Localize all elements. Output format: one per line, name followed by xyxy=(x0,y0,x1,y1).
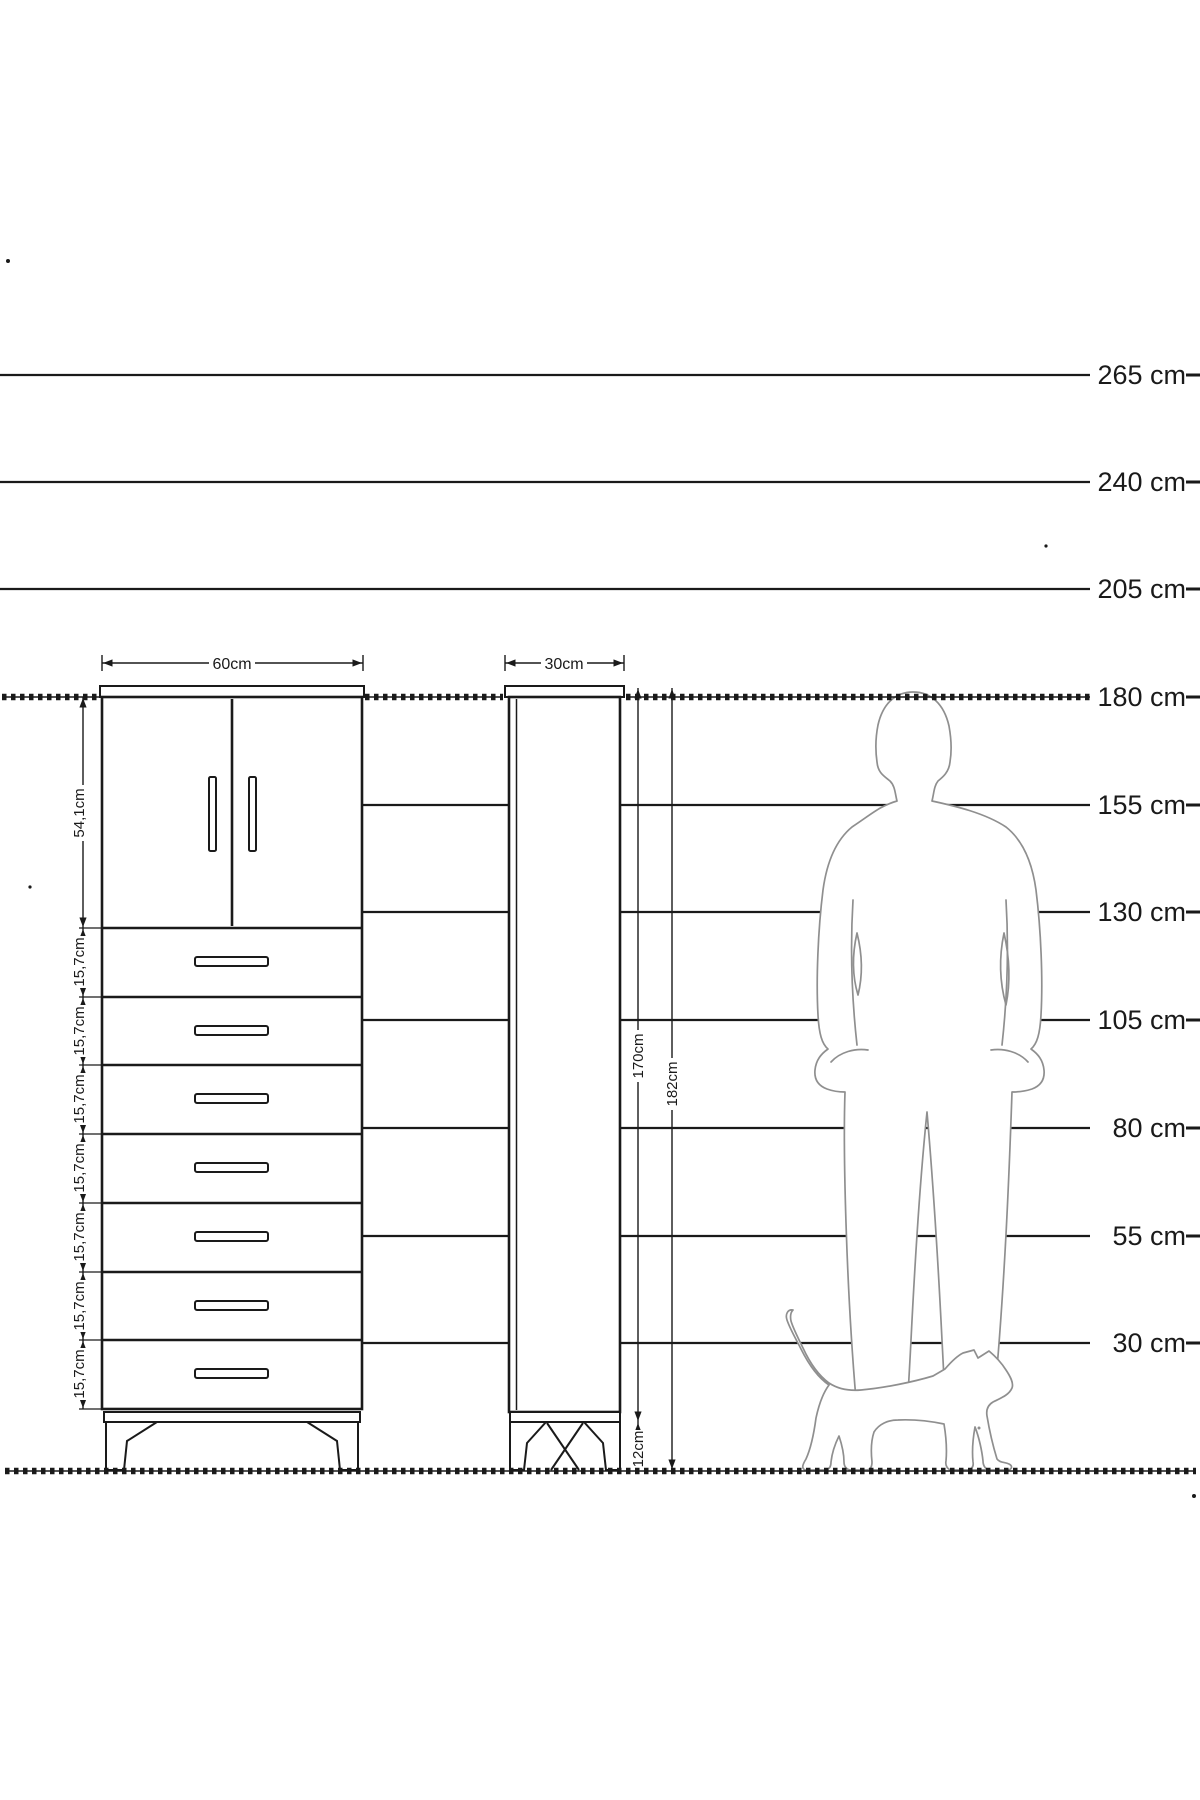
height-label-80: 80 cm xyxy=(1112,1113,1186,1143)
drawer-handle xyxy=(195,957,268,966)
height-label-265: 265 cm xyxy=(1097,360,1186,390)
height-label-30: 30 cm xyxy=(1112,1328,1186,1358)
drawer-height-label: 15,7cm xyxy=(71,1349,88,1398)
wide-cabinet-right-door-handle xyxy=(249,777,256,851)
drawer-handle xyxy=(195,1026,268,1035)
height-label-240: 240 cm xyxy=(1097,467,1186,497)
height-label-155: 155 cm xyxy=(1097,790,1186,820)
wide-cabinet-left-door-handle xyxy=(209,777,216,851)
tall-cabinet-top-plate xyxy=(505,686,624,697)
dim-chain-left: 54,1cm 15,7cm 15,7cm 15,7cm 15,7cm 15,7c… xyxy=(71,697,102,1409)
drawer-height-label: 15,7cm xyxy=(71,1143,88,1192)
drawer-handle xyxy=(195,1369,268,1378)
tall-cabinet-right-leg xyxy=(584,1422,620,1470)
dim-wide-cabinet-width: 60cm xyxy=(102,654,363,673)
carcass-height-label: 170cm xyxy=(630,1033,647,1078)
drawer-height-label: 15,7cm xyxy=(71,937,88,986)
drawer-handle xyxy=(195,1232,268,1241)
drawer-handle xyxy=(195,1163,268,1172)
wide-cabinet-right-leg xyxy=(307,1422,358,1470)
height-label-130: 130 cm xyxy=(1097,897,1186,927)
wide-cabinet-width-label: 60cm xyxy=(212,656,251,673)
height-label-105: 105 cm xyxy=(1097,1005,1186,1035)
total-height-label: 182cm xyxy=(664,1061,681,1106)
drawer-handle xyxy=(195,1301,268,1310)
drawer-height-label: 15,7cm xyxy=(71,1281,88,1330)
height-scale-labels: 265 cm 240 cm 205 cm 180 cm 155 cm 130 c… xyxy=(1097,360,1186,1358)
tall-cabinet-rear-leg xyxy=(547,1423,579,1470)
tall-cabinet-left-leg xyxy=(510,1422,546,1470)
drawer-height-label: 15,7cm xyxy=(71,1006,88,1055)
man-silhouette xyxy=(815,692,1044,1470)
tall-cabinet-base-plate xyxy=(510,1412,620,1422)
wide-cabinet xyxy=(100,686,364,1470)
furniture-dimension-diagram: 60cm 30cm xyxy=(0,0,1200,1800)
tall-cabinet-width-label: 30cm xyxy=(544,656,583,673)
tall-cabinet xyxy=(505,686,624,1470)
leg-height-label: 12cm xyxy=(630,1431,647,1468)
drawer-handle xyxy=(195,1094,268,1103)
door-section-height-label: 54,1cm xyxy=(71,788,88,837)
drawer-height-label: 15,7cm xyxy=(71,1074,88,1123)
wide-cabinet-left-leg xyxy=(106,1422,157,1470)
height-label-180: 180 cm xyxy=(1097,682,1186,712)
scale-edge-ticks xyxy=(1186,375,1200,1343)
wide-cabinet-base-plate xyxy=(104,1412,360,1422)
dim-tall-cabinet-width: 30cm xyxy=(505,654,624,673)
height-label-55: 55 cm xyxy=(1112,1221,1186,1251)
cat-speck xyxy=(978,1427,981,1430)
man-outline xyxy=(815,692,1044,1470)
tall-cabinet-body xyxy=(509,697,620,1412)
wide-cabinet-top-plate xyxy=(100,686,364,697)
drawer-height-label: 15,7cm xyxy=(71,1212,88,1261)
height-label-205: 205 cm xyxy=(1097,574,1186,604)
diagram-canvas: 60cm 30cm xyxy=(0,0,1200,1800)
tall-cabinet-rear-leg xyxy=(551,1423,583,1470)
